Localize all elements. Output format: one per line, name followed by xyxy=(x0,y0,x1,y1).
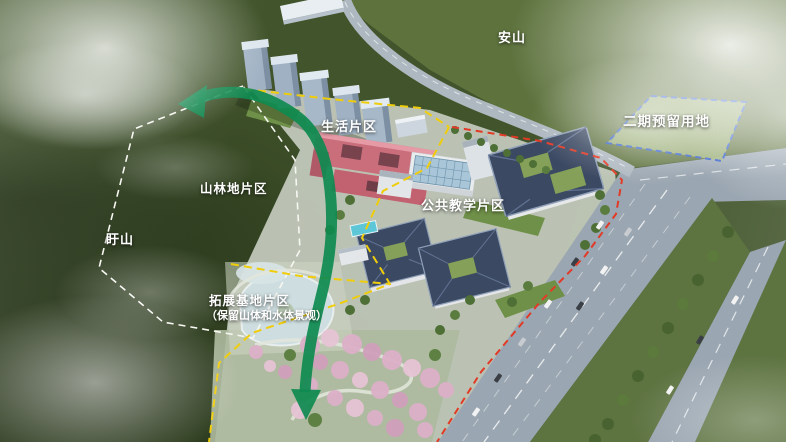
label-expansion-base-district: 拓展基地片区 （保留山体和水体景观） xyxy=(206,293,327,323)
label-expansion-base-title: 拓展基地片区 xyxy=(206,293,327,308)
label-forest-land-district: 山林地片区 xyxy=(200,178,268,197)
label-phase2-reserved-land: 二期预留用地 xyxy=(623,110,710,130)
label-expansion-base-note: （保留山体和水体景观） xyxy=(206,308,327,323)
label-mountain-anshan: 安山 xyxy=(498,27,526,46)
site-plan-scene xyxy=(0,0,786,442)
label-mountain-xushan: 盱山 xyxy=(106,229,134,248)
label-living-district: 生活片区 xyxy=(321,116,377,135)
label-public-teaching-district: 公共教学片区 xyxy=(421,195,505,214)
campus-masterplan-aerial-rendering: 安山 二期预留用地 生活片区 山林地片区 盱山 公共教学片区 拓展基地片区 （保… xyxy=(0,0,786,442)
